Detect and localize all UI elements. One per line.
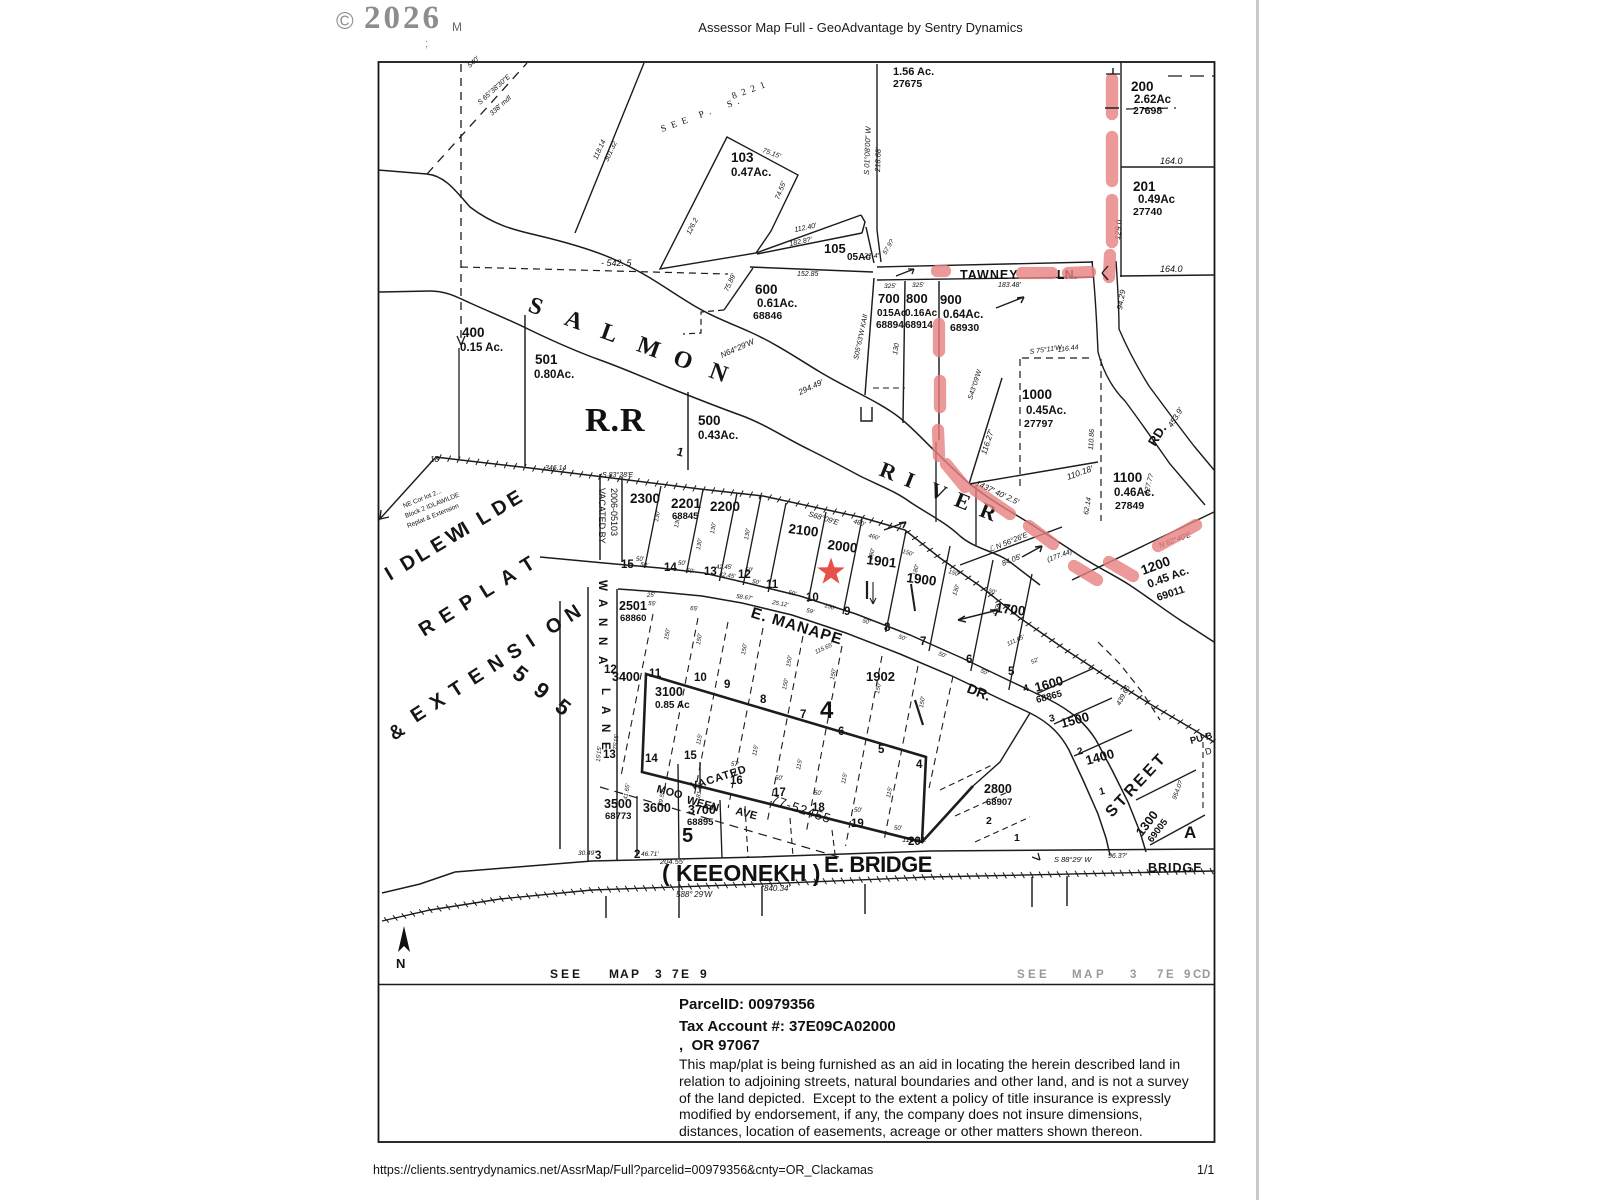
svg-text:L: L (476, 578, 498, 603)
svg-text:68930: 68930 (950, 322, 979, 334)
svg-text:50′: 50′ (678, 561, 687, 567)
svg-text:1: 1 (1014, 832, 1020, 844)
svg-text:18: 18 (430, 455, 439, 464)
svg-text:E: E (1166, 969, 1174, 981)
svg-text:150′: 150′ (741, 642, 749, 655)
svg-text:400: 400 (462, 325, 485, 340)
svg-text:115′: 115′ (752, 744, 760, 757)
svg-text:M: M (1072, 969, 1082, 981)
svg-text:58.67′: 58.67′ (736, 594, 754, 602)
svg-text:68846: 68846 (753, 310, 782, 322)
svg-text:I: I (901, 467, 918, 493)
svg-text:0.47Ac.: 0.47Ac. (731, 167, 771, 179)
svg-text:130′: 130′ (696, 537, 704, 550)
svg-text:600: 600 (755, 282, 778, 297)
svg-text:0.45Ac.: 0.45Ac. (1026, 405, 1066, 417)
svg-text:D: D (1202, 969, 1210, 981)
svg-text:2000: 2000 (827, 537, 859, 556)
svg-text:9: 9 (529, 677, 554, 704)
svg-text:94.29: 94.29 (1115, 289, 1127, 311)
svg-text:3700: 3700 (688, 803, 716, 817)
svg-text:E: E (1028, 969, 1036, 981)
svg-text:E: E (680, 116, 689, 127)
svg-text:150′: 150′ (823, 603, 836, 612)
svg-text:182.8?′: 182.8?′ (789, 236, 813, 248)
svg-text:D: D (1204, 745, 1213, 756)
svg-text:164.0: 164.0 (1160, 264, 1183, 274)
svg-text:954.0?: 954.0? (1171, 779, 1185, 800)
svg-text:50′: 50′ (814, 791, 823, 797)
svg-text:150′: 150′ (664, 627, 672, 640)
svg-text:500: 500 (698, 413, 721, 428)
svg-text:X: X (426, 689, 450, 715)
svg-text:68914: 68914 (905, 320, 933, 331)
svg-text:3: 3 (655, 967, 662, 981)
svg-text:1: 1 (759, 80, 767, 91)
svg-text:E: E (561, 967, 569, 981)
svg-text:RD.: RD. (1145, 422, 1170, 449)
svg-text:5: 5 (682, 825, 693, 847)
svg-text:VACATED BY: VACATED BY (597, 488, 607, 544)
svg-text:DR.: DR. (965, 680, 993, 704)
svg-text:42.45′: 42.45′ (716, 565, 733, 571)
svg-text:M: M (633, 332, 663, 364)
svg-text:700: 700 (878, 291, 900, 306)
svg-text:16: 16 (730, 775, 743, 787)
svg-text:50′: 50′ (861, 618, 871, 626)
svg-text:O: O (542, 613, 567, 640)
svg-text:164.0: 164.0 (1160, 156, 1183, 166)
svg-text:A: A (599, 706, 611, 714)
svg-text:S05°63′W KAII: S05°63′W KAII (852, 314, 869, 361)
svg-text:27797: 27797 (1024, 418, 1053, 430)
svg-text:1: 1 (1098, 786, 1106, 798)
svg-text:4: 4 (1022, 683, 1031, 695)
svg-text:15: 15 (684, 750, 697, 762)
svg-text:5: 5 (551, 693, 576, 720)
svg-text:25′: 25′ (646, 593, 656, 599)
svg-text:3100: 3100 (655, 685, 683, 699)
svg-text:17: 17 (773, 787, 786, 799)
svg-text:50′: 50′ (854, 808, 863, 814)
svg-text:O: O (670, 345, 696, 376)
svg-text:2: 2 (740, 87, 748, 98)
svg-text:115.65′: 115.65′ (814, 642, 835, 656)
svg-text:N: N (599, 724, 611, 732)
svg-text:N64°29′W: N64°29′W (719, 336, 757, 359)
svg-text:110.86: 110.86 (1088, 429, 1096, 450)
svg-text:3400: 3400 (612, 670, 640, 684)
svg-text:TAWNEY: TAWNEY (960, 268, 1019, 282)
svg-text:14: 14 (645, 753, 658, 765)
svg-text:200: 200 (1131, 79, 1154, 94)
svg-text:27698: 27698 (1133, 105, 1162, 117)
svg-text:R: R (415, 615, 439, 642)
svg-text:96.3?′: 96.3?′ (1108, 853, 1128, 860)
svg-text:453.9′: 453.9′ (1166, 406, 1185, 429)
svg-text:T: T (445, 677, 467, 702)
svg-text:T: T (517, 553, 539, 578)
svg-text:P: P (1096, 969, 1104, 981)
svg-text:E: E (465, 664, 488, 690)
svg-text:68907: 68907 (986, 797, 1012, 808)
svg-text:3600: 3600 (643, 801, 671, 815)
svg-text:2006-05103: 2006-05103 (609, 488, 619, 536)
svg-text:7: 7 (672, 967, 679, 981)
svg-text:150′: 150′ (875, 681, 883, 694)
svg-text:460′: 460′ (867, 533, 880, 542)
svg-text:900: 900 (940, 292, 962, 307)
svg-text:218.68′: 218.68′ (873, 147, 883, 173)
svg-text:8: 8 (731, 91, 739, 102)
svg-text:2300: 2300 (630, 491, 660, 506)
svg-text:BRIDGE: BRIDGE (1148, 861, 1203, 875)
svg-text:840.34′: 840.34′ (764, 884, 790, 893)
svg-text:105: 105 (824, 241, 846, 256)
svg-text:E: E (681, 967, 689, 981)
svg-text:E. BRIDGE: E. BRIDGE (824, 852, 932, 877)
svg-text:0.61Ac.: 0.61Ac. (757, 298, 797, 310)
svg-text:S 01°08′00″ W: S 01°08′00″ W (862, 126, 873, 176)
svg-text:201: 201 (1133, 179, 1156, 194)
svg-text:4: 4 (916, 759, 923, 771)
svg-text:294.49′: 294.49′ (796, 377, 825, 397)
svg-text:PU B: PU B (1189, 730, 1214, 747)
svg-text:S: S (525, 292, 546, 321)
svg-text:74.55′: 74.55′ (774, 180, 788, 201)
svg-text:130′: 130′ (710, 521, 718, 534)
svg-text:540′: 540′ (467, 55, 482, 69)
svg-text:S 88°29′ W: S 88°29′ W (1054, 855, 1092, 864)
svg-text:5: 5 (508, 660, 533, 687)
svg-text:I: I (381, 564, 397, 586)
svg-text:42.45′: 42.45′ (719, 572, 737, 580)
svg-text:27675: 27675 (893, 78, 922, 90)
svg-text:0.16Ac: 0.16Ac (905, 308, 938, 319)
svg-text:C: C (1193, 969, 1201, 981)
svg-text:8: 8 (760, 694, 767, 706)
svg-text:50′: 50′ (636, 557, 645, 563)
svg-text:68894: 68894 (876, 320, 904, 331)
svg-text:126.2: 126.2 (686, 217, 700, 236)
svg-text:439.65: 439.65 (1116, 685, 1132, 707)
svg-text:P: P (631, 967, 639, 981)
svg-text:130: 130 (892, 343, 901, 356)
svg-text:N: N (561, 601, 585, 627)
svg-text:21.4′: 21.4′ (863, 253, 880, 260)
svg-text:S43°09′W: S43°09′W (966, 367, 984, 400)
svg-text:130′: 130′ (744, 527, 752, 540)
svg-text:N: N (596, 618, 608, 626)
svg-text:152.85: 152.85 (797, 271, 819, 278)
svg-text:19: 19 (851, 818, 864, 830)
svg-text:50′: 50′ (788, 590, 798, 598)
svg-text:S: S (1017, 969, 1025, 981)
svg-text:325′: 325′ (912, 282, 925, 289)
svg-text:116.44: 116.44 (1057, 344, 1079, 354)
svg-text:L: L (597, 319, 621, 349)
svg-text:115′: 115′ (696, 733, 704, 746)
svg-text:E: E (572, 967, 580, 981)
svg-text:S: S (660, 124, 668, 135)
svg-text:M: M (609, 967, 619, 981)
svg-text:800: 800 (906, 291, 928, 306)
svg-text:E: E (1039, 969, 1047, 981)
svg-text:7: 7 (1157, 969, 1163, 981)
svg-text:501: 501 (535, 352, 558, 367)
svg-text:2201: 2201 (671, 496, 702, 511)
svg-text:2501: 2501 (619, 599, 647, 613)
svg-text:- 542. 5: - 542. 5 (601, 258, 633, 268)
svg-text:150′: 150′ (919, 695, 927, 708)
svg-text:50′: 50′ (937, 651, 947, 660)
svg-text:150′: 150′ (901, 549, 914, 558)
svg-text:50′: 50′ (745, 568, 754, 574)
svg-text:480′: 480′ (852, 518, 866, 528)
svg-text:325′: 325′ (884, 283, 897, 290)
svg-text:R.R: R.R (585, 402, 646, 439)
svg-text:0.43Ac.: 0.43Ac. (698, 430, 738, 442)
svg-text:27740: 27740 (1133, 206, 1162, 218)
svg-text:V: V (926, 477, 950, 506)
svg-text:N: N (596, 637, 608, 645)
svg-text:130′: 130′ (952, 583, 961, 596)
svg-text:118.82.: 118.82. (902, 835, 926, 844)
svg-text:10: 10 (694, 672, 707, 684)
svg-text:1: 1 (675, 444, 685, 459)
svg-text:4: 4 (820, 697, 834, 724)
svg-text:1000: 1000 (1022, 387, 1052, 402)
svg-text:2: 2 (749, 84, 757, 95)
svg-text:N: N (484, 651, 508, 677)
svg-text:2800: 2800 (984, 782, 1012, 796)
svg-text:57.9?: 57.9? (882, 238, 896, 256)
svg-text:55′: 55′ (648, 601, 657, 608)
svg-text:13: 13 (603, 749, 616, 761)
svg-text:1100: 1100 (1113, 470, 1142, 485)
svg-text:A: A (620, 967, 629, 981)
svg-text:0.15 Ac.: 0.15 Ac. (460, 342, 503, 354)
svg-text:130′: 130′ (654, 509, 662, 522)
svg-text:E: E (435, 603, 458, 629)
svg-text:338′ mdl: 338′ mdl (489, 94, 513, 117)
svg-text:E: E (407, 701, 430, 727)
svg-text:I: I (522, 631, 539, 652)
svg-text:A: A (1084, 969, 1092, 981)
svg-text:18: 18 (812, 802, 825, 814)
svg-text:111.65′: 111.65′ (1006, 634, 1026, 648)
svg-text:68773: 68773 (605, 811, 631, 822)
svg-text:57′: 57′ (731, 762, 740, 768)
svg-text:S: S (550, 967, 558, 981)
svg-text:30.49′: 30.49′ (578, 850, 596, 857)
svg-text:62.14: 62.14 (1083, 497, 1093, 516)
svg-text:1902: 1902 (866, 669, 895, 684)
svg-text:( KEEONEKH ): ( KEEONEKH ) (662, 860, 820, 886)
svg-text:A: A (561, 305, 587, 336)
svg-text:A: A (596, 599, 608, 607)
svg-text:59′: 59′ (806, 608, 816, 616)
svg-text:3: 3 (1130, 969, 1136, 981)
svg-text:0.49Ac: 0.49Ac (1138, 194, 1176, 206)
svg-text:R: R (876, 456, 901, 486)
svg-text:27849: 27849 (1115, 500, 1144, 512)
svg-text:50′: 50′ (640, 562, 649, 569)
svg-text:N: N (706, 358, 732, 389)
svg-text:9: 9 (700, 967, 707, 981)
svg-text:1.56 Ac.: 1.56 Ac. (893, 66, 934, 78)
svg-text:81.67: 81.67 (696, 782, 705, 798)
svg-text:.: . (707, 107, 713, 117)
svg-text:46.71′: 46.71′ (641, 851, 659, 858)
svg-text:P: P (698, 110, 706, 121)
svg-text:65′: 65′ (690, 606, 699, 613)
svg-text:W: W (596, 580, 608, 591)
svg-text:75.89′: 75.89′ (723, 272, 738, 293)
svg-text:50′: 50′ (987, 588, 997, 596)
svg-text:E: E (670, 120, 679, 131)
svg-text:75′15′: 75′15′ (613, 733, 620, 750)
svg-text:130′: 130′ (674, 515, 682, 528)
svg-text:150′: 150′ (786, 654, 794, 667)
svg-text:0.80Ac.: 0.80Ac. (534, 369, 574, 381)
svg-text:015Ac: 015Ac (877, 308, 907, 319)
svg-text:75.15′: 75.15′ (761, 147, 782, 160)
svg-text:150′: 150′ (830, 667, 838, 680)
svg-text:588° 29′W: 588° 29′W (676, 890, 714, 899)
svg-text:N: N (396, 956, 405, 971)
svg-text:0.85 Ac: 0.85 Ac (655, 700, 690, 711)
svg-text:L: L (599, 688, 611, 695)
svg-text:150′: 150′ (696, 632, 704, 645)
svg-text:110.18′: 110.18′ (1065, 463, 1094, 482)
svg-text:50′: 50′ (752, 579, 762, 586)
svg-text:103: 103 (731, 150, 754, 165)
svg-text:0.64Ac.: 0.64Ac. (943, 309, 983, 321)
svg-text:&: & (385, 719, 409, 745)
svg-text:52′: 52′ (1030, 657, 1040, 666)
svg-text:50′: 50′ (775, 776, 784, 782)
svg-text:150′: 150′ (782, 677, 790, 690)
svg-text:9: 9 (1184, 969, 1190, 981)
svg-text:50′: 50′ (686, 568, 695, 575)
svg-text:68860: 68860 (620, 613, 646, 624)
svg-text:(177.44): (177.44) (1046, 548, 1073, 563)
svg-text:25.12′: 25.12′ (771, 600, 790, 609)
svg-text:50′: 50′ (897, 634, 907, 643)
svg-text:84.05′: 84.05′ (1000, 552, 1023, 568)
svg-text:50′: 50′ (894, 826, 903, 832)
svg-text:A: A (496, 564, 520, 590)
svg-text:2100: 2100 (788, 521, 820, 540)
svg-text:2: 2 (986, 815, 992, 827)
svg-text:115′: 115′ (841, 772, 849, 785)
svg-text:115′: 115′ (796, 758, 804, 771)
svg-text:183.48′: 183.48′ (998, 282, 1021, 289)
svg-text:9: 9 (724, 679, 730, 691)
svg-text:P: P (456, 590, 479, 616)
